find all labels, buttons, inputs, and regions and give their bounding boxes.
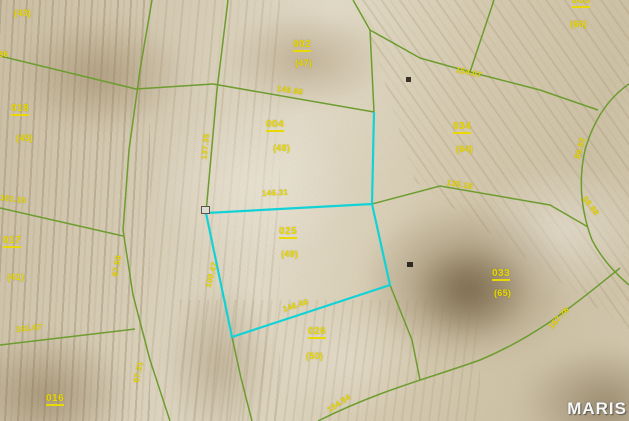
structure-marker: [406, 77, 411, 82]
parcel-lines-group: [0, 0, 629, 421]
structure-marker: [407, 262, 413, 267]
aerial-parcel-map[interactable]: (43)018(45)017(41)016002(47)004(48)025(4…: [0, 0, 629, 421]
parcel-boundary-lines: [0, 0, 629, 421]
highlighted-parcel-outline[interactable]: [206, 112, 390, 337]
structure-marker: [201, 206, 210, 214]
maris-watermark: MARIS: [567, 399, 627, 419]
